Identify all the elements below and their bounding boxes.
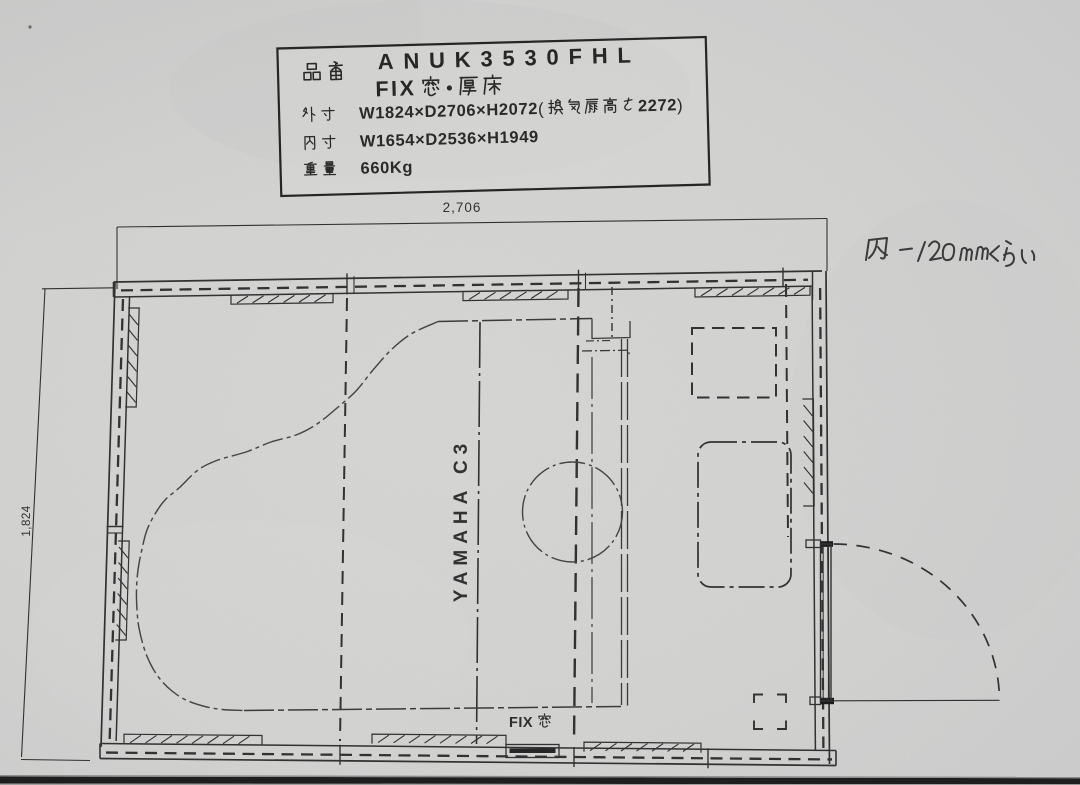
svg-text:): ) xyxy=(677,96,683,115)
svg-text:1,824: 1,824 xyxy=(21,505,33,536)
svg-text:2,706: 2,706 xyxy=(443,200,482,215)
svg-text:(: ( xyxy=(538,99,545,118)
svg-text:660Kg: 660Kg xyxy=(360,158,413,177)
svg-text:2272: 2272 xyxy=(638,96,678,115)
svg-text:FIX: FIX xyxy=(375,76,417,101)
svg-text:FIX: FIX xyxy=(509,715,533,731)
svg-text:YAMAHA C3: YAMAHA C3 xyxy=(451,438,472,603)
